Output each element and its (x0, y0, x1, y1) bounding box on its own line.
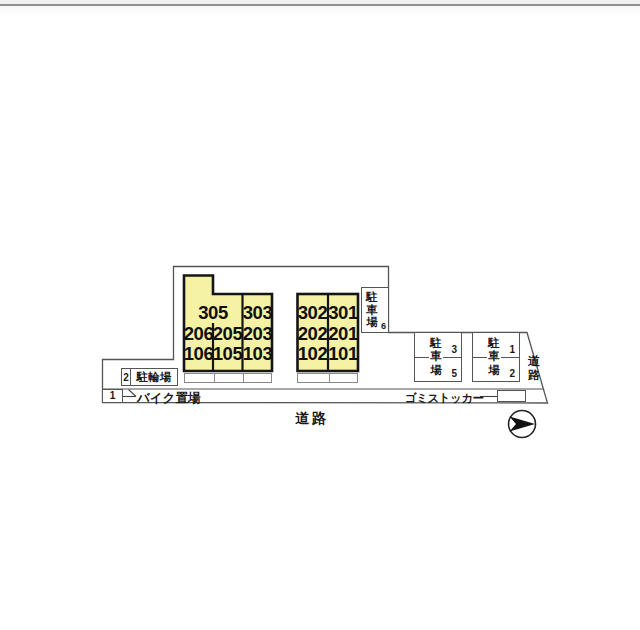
unit-106: 106 (184, 344, 213, 363)
unit-301: 301 (328, 303, 358, 322)
unit-101: 101 (328, 344, 358, 363)
parking-stall6-number: 6 (381, 321, 386, 331)
unit-202: 202 (297, 324, 328, 343)
garbage-storage-box (497, 390, 526, 402)
parking-lot-a: 駐車場 3 5 (414, 332, 462, 382)
parking-lot-a-label: 駐車場 (429, 337, 443, 377)
unit-302: 302 (297, 303, 328, 322)
unit-206: 206 (184, 324, 213, 343)
unit-103: 103 (243, 344, 272, 363)
parking-stall3-number: 3 (451, 344, 457, 355)
unit-205: 205 (213, 324, 242, 343)
porch-divider (243, 374, 244, 382)
bicycle-parking-label: 駐輪場 (137, 370, 172, 385)
unit-102: 102 (297, 344, 328, 363)
unit-305: 305 (184, 303, 242, 322)
parking-lot-b-label: 駐車場 (487, 337, 501, 377)
right-building-porch-strip (297, 373, 358, 383)
road-label-right: 道路 (527, 355, 541, 382)
parking-stall2-number: 2 (509, 368, 515, 379)
motorcycle-parking-label: バイク置場 (137, 390, 200, 407)
left-building-porch-strip (184, 373, 272, 383)
parking-stall6-label: 駐車場 (365, 291, 379, 329)
site-plan-canvas: 305 303 206 205 203 106 105 103 302 301 … (0, 0, 640, 630)
parking-lot-b: 駐車場 1 2 (472, 332, 520, 382)
motorcycle-leader-tick (129, 390, 137, 397)
road-label-bottom: 道路 (295, 410, 329, 428)
unit-203: 203 (243, 324, 272, 343)
motorcycle-number: 1 (110, 390, 116, 401)
unit-105: 105 (213, 344, 242, 363)
porch-divider (329, 374, 330, 382)
parking-stall5-number: 5 (451, 368, 457, 379)
parking-stall6-box: 駐車場 6 (361, 287, 389, 333)
bicycle-number: 2 (123, 372, 129, 383)
garbage-storage-label: ゴミストッカー (405, 391, 484, 406)
porch-divider (214, 374, 215, 382)
unit-201: 201 (328, 324, 358, 343)
unit-303: 303 (243, 303, 272, 322)
motorcycle-number-box: 1 (102, 389, 123, 403)
parking-stall1-number: 1 (509, 344, 515, 355)
bicycle-parking-box: 駐輪場 (130, 368, 178, 386)
